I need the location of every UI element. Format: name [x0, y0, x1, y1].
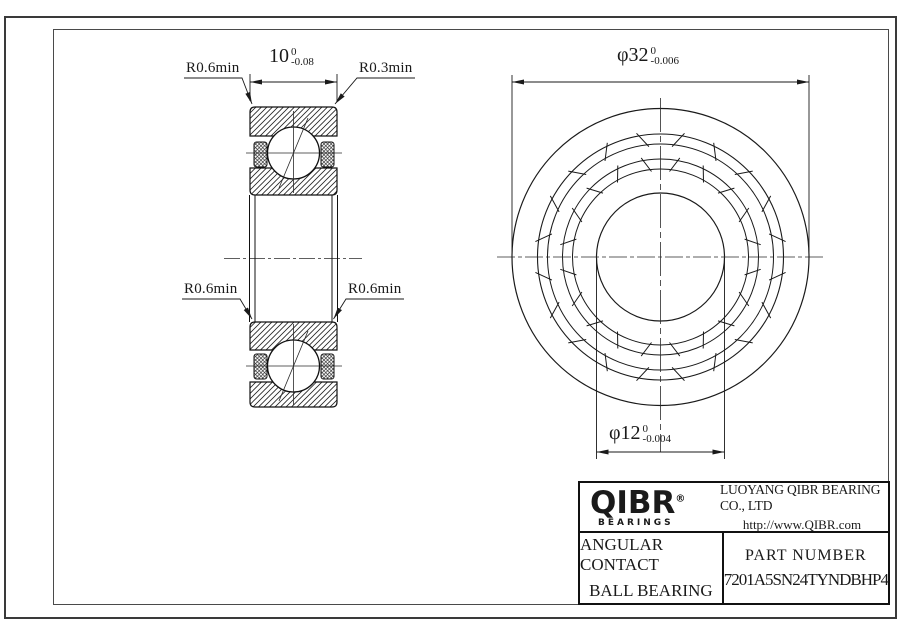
front-view [497, 98, 824, 452]
title-block: QIBR® BEARINGS LUOYANG QIBR BEARING CO.,… [578, 481, 890, 605]
dimension-width [250, 74, 337, 101]
title-block-header-row: QIBR® BEARINGS LUOYANG QIBR BEARING CO.,… [580, 483, 888, 533]
radius-label-mid-right: R0.6min [348, 281, 402, 298]
company-name: LUOYANG QIBR BEARING CO., LTD [720, 482, 884, 514]
cage-section [254, 142, 267, 167]
radius-label-mid-left: R0.6min [184, 281, 238, 298]
company-info: LUOYANG QIBR BEARING CO., LTD http://www… [720, 482, 888, 533]
cage-section [321, 142, 334, 167]
title-block-detail-row: ANGULAR CONTACT BALL BEARING PART NUMBER… [580, 533, 888, 603]
registered-mark-icon: ® [675, 494, 685, 505]
radius-label-top-left: R0.6min [186, 60, 240, 77]
company-logo: QIBR® BEARINGS [580, 486, 720, 528]
width-value: 10 [269, 46, 289, 66]
logo-subtext: BEARINGS [598, 518, 720, 528]
radius-label-top-right: R0.3min [359, 60, 413, 77]
outer-diameter-tolerance: 0 -0.006 [651, 45, 679, 66]
part-number-label: PART NUMBER [745, 547, 867, 565]
cage-section [254, 354, 267, 379]
product-type-line2: BALL BEARING [589, 581, 713, 601]
bore-diameter-value: φ12 [609, 423, 641, 443]
logo-wordmark: QIBR [590, 485, 675, 521]
outer-diameter-value: φ32 [617, 45, 649, 65]
company-website: http://www.QIBR.com [743, 517, 861, 533]
bore-diameter-text: φ12 0 -0.004 [609, 423, 671, 444]
part-number-cell: PART NUMBER 7201A5SN24TYNDBHP4 [722, 533, 888, 603]
section-bottom [246, 322, 342, 407]
outer-diameter-text: φ32 0 -0.006 [617, 45, 679, 66]
cage-section [321, 354, 334, 379]
product-type-line1: ANGULAR CONTACT [580, 535, 722, 575]
part-number-value: 7201A5SN24TYNDBHP4 [724, 570, 888, 590]
section-top [246, 107, 342, 195]
product-type-cell: ANGULAR CONTACT BALL BEARING [580, 533, 722, 603]
cross-section-view [182, 74, 415, 407]
bore-diameter-tolerance: 0 -0.004 [643, 423, 671, 444]
drawing-sheet: R0.6min R0.3min R0.6min R0.6min 10 0 -0.… [0, 0, 900, 636]
width-dimension-text: 10 0 -0.08 [269, 46, 314, 67]
width-tolerance: 0 -0.08 [291, 46, 314, 67]
